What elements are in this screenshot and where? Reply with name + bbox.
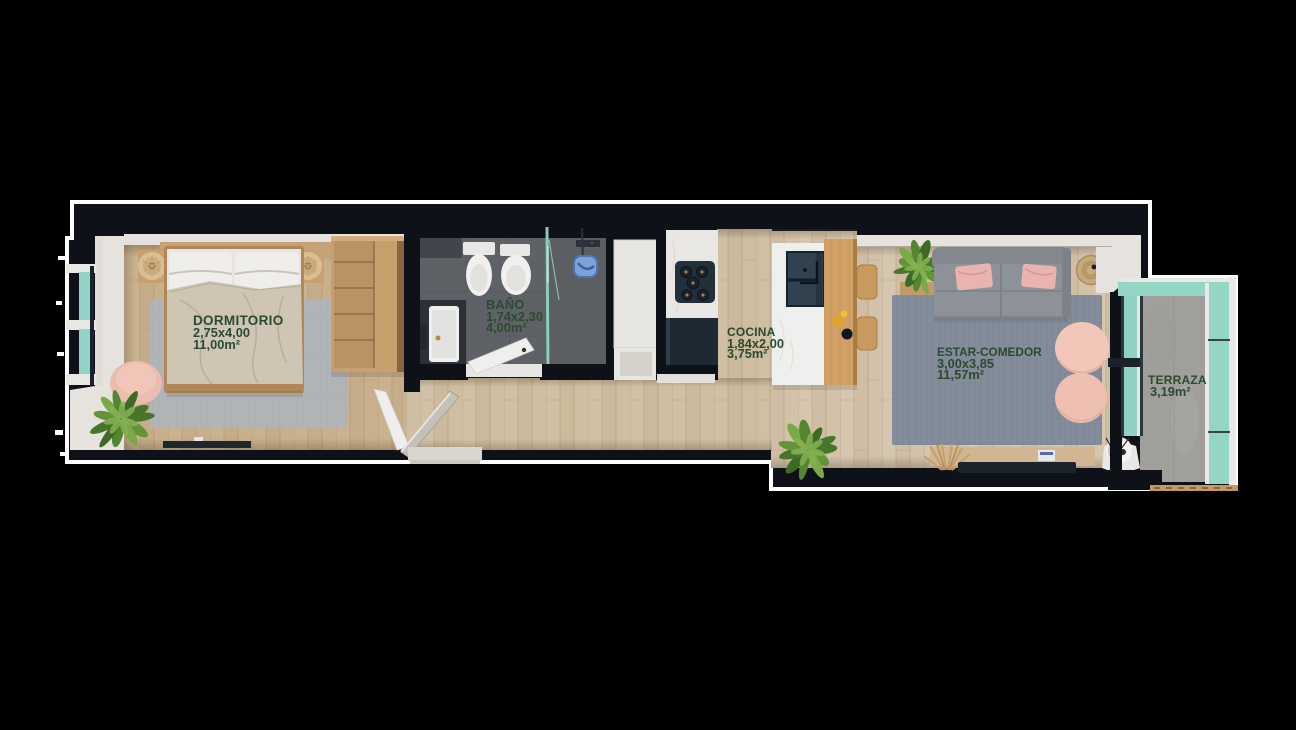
svg-text:3,75m²: 3,75m² (727, 346, 768, 361)
svg-text:11,57m²: 11,57m² (937, 367, 984, 382)
svg-text:3,19m²: 3,19m² (1150, 384, 1191, 399)
svg-text:4,00m²: 4,00m² (486, 320, 527, 335)
svg-text:11,00m²: 11,00m² (193, 337, 240, 352)
